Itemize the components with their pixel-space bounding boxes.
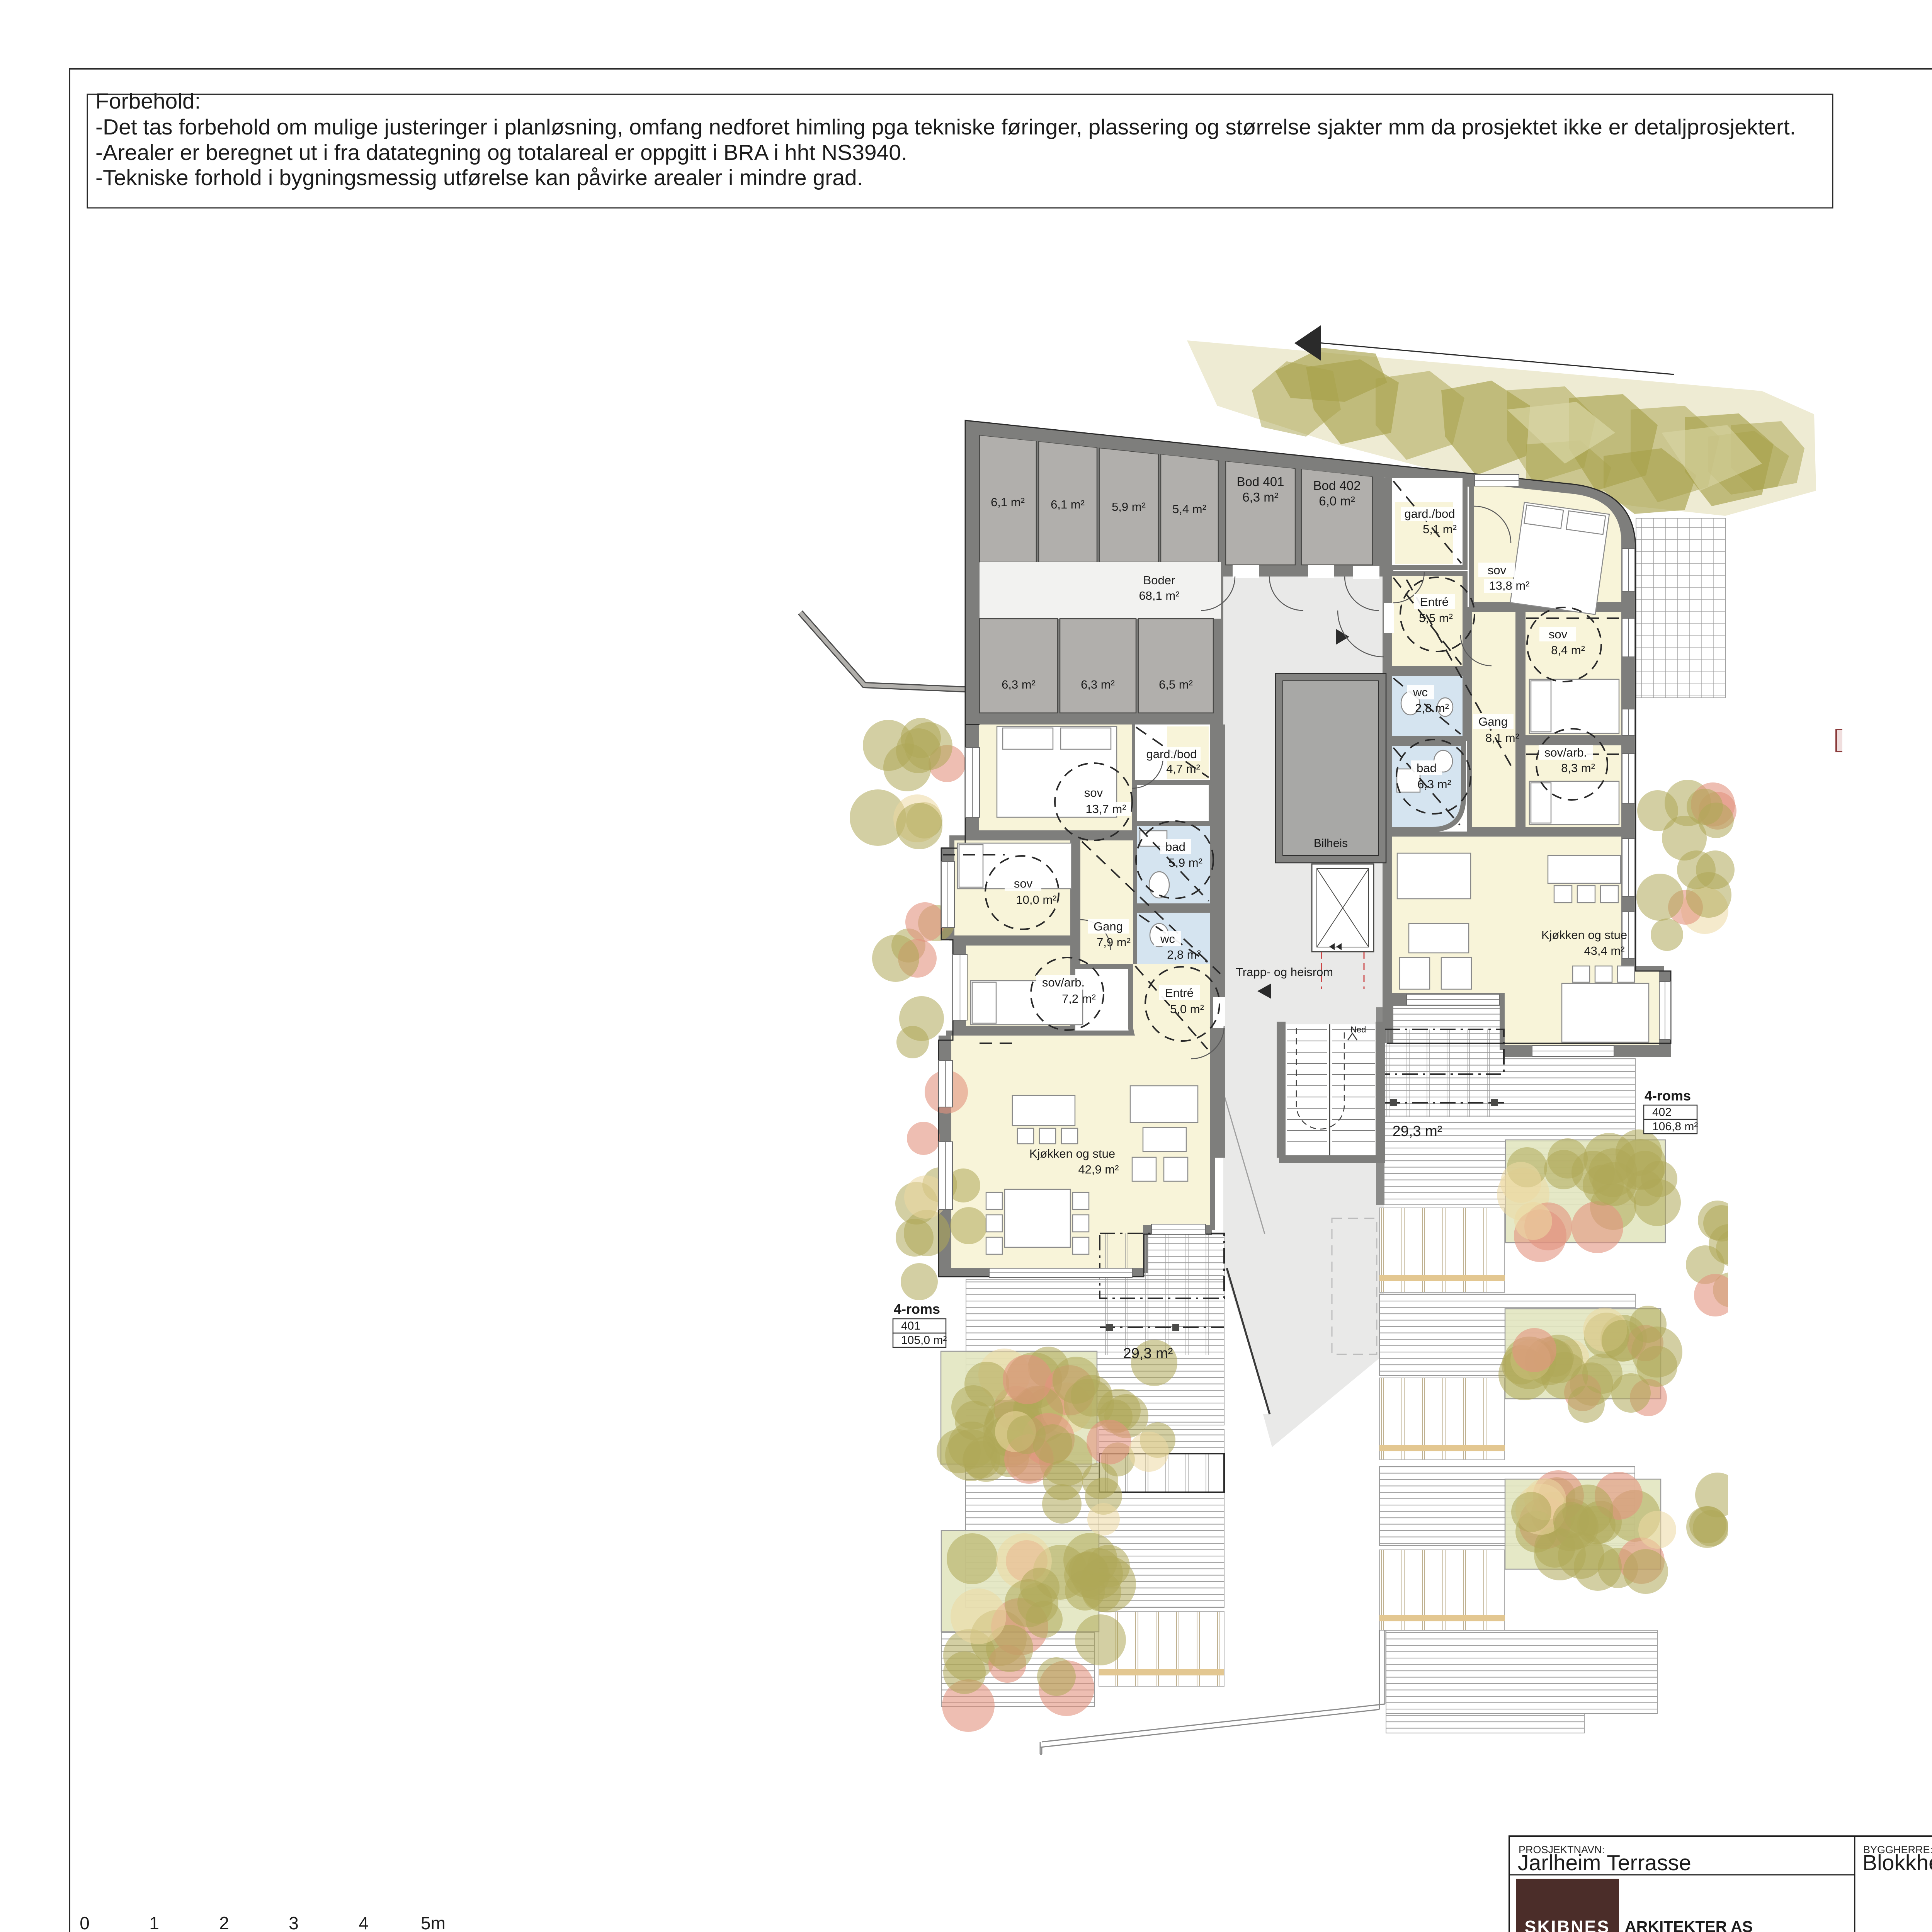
svg-text:sov: sov bbox=[1084, 786, 1103, 799]
svg-text:gard./bod: gard./bod bbox=[1405, 507, 1455, 520]
svg-text:10,0 m²: 10,0 m² bbox=[1016, 893, 1056, 906]
svg-text:2: 2 bbox=[219, 1913, 229, 1932]
svg-text:wc: wc bbox=[1160, 932, 1175, 946]
svg-text:-Tekniske forhold i bygningsme: -Tekniske forhold i bygningsmessig utfør… bbox=[95, 165, 863, 190]
svg-text:Gang: Gang bbox=[1094, 920, 1123, 933]
svg-text:402: 402 bbox=[1652, 1106, 1672, 1119]
svg-text:6,3 m²: 6,3 m² bbox=[1242, 490, 1279, 504]
svg-text:Ned: Ned bbox=[1350, 1025, 1366, 1034]
svg-text:8,1 m²: 8,1 m² bbox=[1485, 731, 1519, 745]
svg-text:6,5 m²: 6,5 m² bbox=[1159, 678, 1193, 691]
svg-text:Boder: Boder bbox=[1143, 573, 1175, 587]
svg-text:4,7 m²: 4,7 m² bbox=[1166, 762, 1200, 776]
svg-text:sov/arb.: sov/arb. bbox=[1042, 976, 1085, 989]
svg-text:ARKITEKTER AS: ARKITEKTER AS bbox=[1625, 1918, 1753, 1932]
svg-text:5,0 m²: 5,0 m² bbox=[1170, 1002, 1204, 1016]
svg-text:1: 1 bbox=[149, 1913, 159, 1932]
svg-text:105,0 m²: 105,0 m² bbox=[901, 1334, 947, 1347]
svg-text:Bod 402: Bod 402 bbox=[1313, 478, 1361, 493]
svg-text:6,0 m²: 6,0 m² bbox=[1319, 494, 1355, 508]
svg-text:SKIBNES: SKIBNES bbox=[1524, 1917, 1610, 1932]
svg-text:42,9 m²: 42,9 m² bbox=[1078, 1163, 1119, 1176]
svg-text:401: 401 bbox=[901, 1320, 920, 1332]
svg-text:13,7 m²: 13,7 m² bbox=[1085, 802, 1126, 816]
svg-text:7,2 m²: 7,2 m² bbox=[1062, 992, 1096, 1005]
svg-text:Blokkheim AS: Blokkheim AS bbox=[1862, 1850, 1932, 1875]
svg-text:5m: 5m bbox=[421, 1913, 446, 1932]
svg-text:7,9 m²: 7,9 m² bbox=[1097, 935, 1131, 949]
svg-text:8,4 m²: 8,4 m² bbox=[1551, 643, 1585, 657]
svg-text:5,9 m²: 5,9 m² bbox=[1168, 856, 1202, 869]
svg-text:sov: sov bbox=[1488, 563, 1507, 577]
svg-text:3: 3 bbox=[289, 1913, 299, 1932]
svg-text:wc: wc bbox=[1413, 685, 1428, 699]
svg-text:Jarlheim Terrasse: Jarlheim Terrasse bbox=[1518, 1850, 1691, 1875]
svg-text:Bilheis: Bilheis bbox=[1314, 837, 1348, 850]
svg-text:106,8 m²: 106,8 m² bbox=[1652, 1120, 1698, 1133]
svg-text:sov: sov bbox=[1014, 877, 1033, 890]
svg-text:4: 4 bbox=[359, 1913, 369, 1932]
svg-text:2,8 m²: 2,8 m² bbox=[1415, 701, 1449, 715]
svg-text:29,3 m²: 29,3 m² bbox=[1123, 1345, 1173, 1362]
svg-text:4-roms: 4-roms bbox=[1645, 1088, 1691, 1104]
svg-text:Kjøkken og stue: Kjøkken og stue bbox=[1029, 1147, 1115, 1160]
svg-text:sov/arb.: sov/arb. bbox=[1544, 746, 1587, 759]
svg-text:-Det tas forbehold om mulige j: -Det tas forbehold om mulige justeringer… bbox=[95, 115, 1796, 139]
svg-text:6,1 m²: 6,1 m² bbox=[1051, 498, 1085, 511]
svg-text:sov: sov bbox=[1549, 628, 1568, 641]
svg-text:bad: bad bbox=[1417, 761, 1437, 775]
svg-text:6,3 m²: 6,3 m² bbox=[1081, 678, 1115, 691]
svg-text:29,3 m²: 29,3 m² bbox=[1393, 1123, 1442, 1139]
svg-text:6,1 m²: 6,1 m² bbox=[991, 495, 1025, 509]
svg-text:43,4 m²: 43,4 m² bbox=[1584, 944, 1624, 957]
svg-text:68,1 m²: 68,1 m² bbox=[1139, 589, 1179, 602]
svg-text:gard./bod: gard./bod bbox=[1146, 747, 1197, 761]
svg-text:6,3 m²: 6,3 m² bbox=[1002, 678, 1036, 691]
svg-text:Entré: Entré bbox=[1420, 595, 1449, 609]
svg-text:4-roms: 4-roms bbox=[894, 1301, 940, 1317]
svg-text:13,8 m²: 13,8 m² bbox=[1489, 579, 1529, 592]
svg-text:5,1 m²: 5,1 m² bbox=[1423, 522, 1457, 536]
svg-text:Entré: Entré bbox=[1165, 986, 1194, 1000]
svg-text:2,8 m²: 2,8 m² bbox=[1167, 948, 1201, 961]
svg-text:5,9 m²: 5,9 m² bbox=[1112, 500, 1146, 514]
svg-text:bad: bad bbox=[1165, 840, 1185, 854]
svg-text:Trapp- og heisrom: Trapp- og heisrom bbox=[1236, 965, 1333, 979]
svg-text:-Arealer er beregnet ut i fra: -Arealer er beregnet ut i fra datategnin… bbox=[95, 140, 907, 165]
svg-text:5,4 m²: 5,4 m² bbox=[1172, 502, 1206, 516]
svg-text:Forbehold:: Forbehold: bbox=[95, 89, 201, 114]
svg-text:Gang: Gang bbox=[1478, 715, 1508, 728]
svg-text:5,5 m²: 5,5 m² bbox=[1419, 611, 1453, 625]
svg-text:Kjøkken og stue: Kjøkken og stue bbox=[1541, 928, 1627, 942]
svg-text:0: 0 bbox=[80, 1913, 90, 1932]
svg-text:6,3 m²: 6,3 m² bbox=[1417, 777, 1451, 791]
svg-text:Bod 401: Bod 401 bbox=[1237, 474, 1284, 489]
svg-text:8,3 m²: 8,3 m² bbox=[1561, 761, 1595, 775]
